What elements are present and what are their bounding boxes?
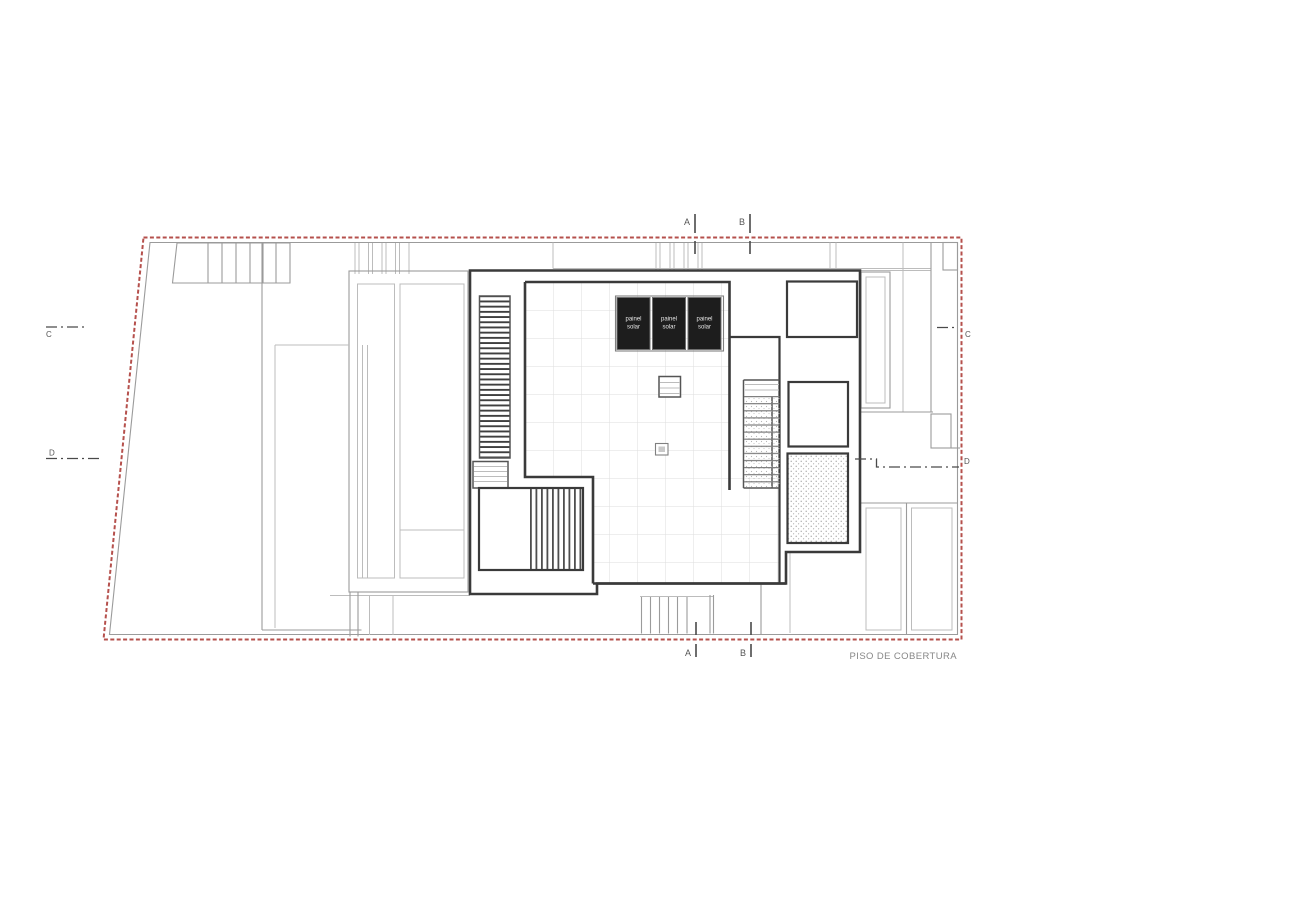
section-marker-b-bottom: B bbox=[740, 648, 746, 658]
section-marker-c-right: C bbox=[965, 330, 971, 339]
solar-panel-1 bbox=[617, 298, 650, 350]
solar-panel-1-label-line1: painel bbox=[625, 317, 641, 323]
louver-slats bbox=[473, 296, 510, 488]
skylight-large bbox=[789, 382, 849, 447]
solar-panel-2 bbox=[653, 298, 686, 350]
right-terraces bbox=[860, 272, 960, 635]
left-terraces bbox=[262, 243, 470, 637]
solar-panel-2-label-line2: solar bbox=[662, 325, 675, 331]
solar-panel-1-label-line2: solar bbox=[627, 325, 640, 331]
solar-panel-array: painel solar painel solar painel solar bbox=[616, 296, 724, 351]
floor-plan-svg: painel solar painel solar painel solar A… bbox=[0, 0, 1293, 914]
section-marker-b-top: B bbox=[739, 217, 745, 227]
stair-treads-upper bbox=[744, 396, 780, 488]
deck-skylight bbox=[659, 377, 681, 398]
section-marker-a-bottom: A bbox=[685, 648, 691, 658]
left-annex-roof bbox=[349, 271, 468, 592]
stair-treads-lower bbox=[528, 489, 582, 569]
drawing-sheet: painel solar painel solar painel solar A… bbox=[0, 0, 1293, 914]
section-marker-c-left: C bbox=[46, 330, 52, 339]
stair-lower bbox=[479, 488, 583, 570]
solar-panel-2-label-line1: painel bbox=[661, 317, 677, 323]
section-marker-d-left: D bbox=[49, 449, 55, 458]
solar-panel-3 bbox=[688, 298, 721, 350]
rooftop-room bbox=[787, 282, 857, 338]
drawing-title: PISO DE COBERTURA bbox=[850, 651, 958, 662]
section-marker-d-right: D bbox=[964, 457, 970, 466]
section-marker-a-top: A bbox=[684, 217, 690, 227]
vent-box bbox=[473, 462, 508, 489]
gravel-area bbox=[788, 454, 849, 544]
driveway-strips bbox=[173, 243, 291, 283]
solar-panel-3-label-line2: solar bbox=[698, 325, 711, 331]
deck-vent bbox=[656, 444, 669, 456]
stair-upper bbox=[744, 380, 780, 488]
solar-panel-3-label-line1: painel bbox=[696, 317, 712, 323]
